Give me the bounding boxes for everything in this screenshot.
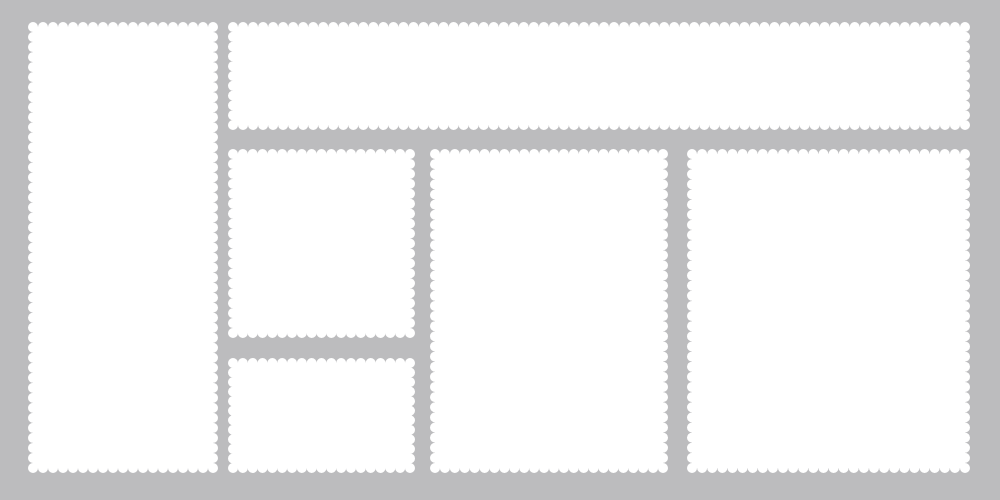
scallop-bump — [188, 463, 198, 473]
scallop-bump — [388, 22, 398, 32]
scallop-bump — [228, 42, 238, 52]
scallop-bump — [509, 149, 519, 159]
scallop-bump — [228, 120, 238, 130]
scallop-bump — [208, 263, 218, 273]
scallop-bump — [168, 22, 178, 32]
scallop-bump — [499, 22, 509, 32]
scallop-bump — [430, 190, 440, 200]
scallop-bump — [430, 169, 440, 179]
scallop-bump — [288, 120, 298, 130]
scallop-bump — [228, 100, 238, 110]
scallop-bump — [430, 281, 440, 291]
scallop-bump — [208, 453, 218, 463]
scallop-bump — [850, 120, 860, 130]
scallop-bump — [430, 352, 440, 362]
scallop-bump — [960, 341, 970, 351]
scallop-bump — [378, 22, 388, 32]
scallop-bump — [687, 250, 697, 260]
scallop-bump — [960, 200, 970, 210]
scallop-bump — [356, 358, 366, 368]
scallop-bump — [198, 463, 208, 473]
scallop-bump — [649, 120, 659, 130]
scallop-bump — [849, 149, 859, 159]
scallop-bump — [960, 179, 970, 189]
scallop-bump — [869, 463, 879, 473]
scallop-bump — [28, 102, 38, 112]
scallop-bump — [830, 120, 840, 130]
scallop-bump — [228, 453, 238, 463]
scallop-bump — [317, 358, 327, 368]
scallop-bump — [960, 22, 970, 32]
scallop-bump — [385, 149, 395, 159]
scallop-bump — [328, 120, 338, 130]
scallop-bump — [208, 433, 218, 443]
scallop-bump — [539, 22, 549, 32]
scallop-bump — [697, 149, 707, 159]
scallop-bump — [228, 169, 238, 179]
scallop-bump — [707, 463, 717, 473]
scallop-bump — [258, 328, 268, 338]
scallop-bump — [28, 122, 38, 132]
scallop-bump — [38, 22, 48, 32]
scallop-bump — [326, 328, 336, 338]
scallop-bump — [820, 120, 830, 130]
scallop-bump — [687, 220, 697, 230]
scallop-bump — [208, 232, 218, 242]
scallop-bump — [860, 120, 870, 130]
scallop-bump — [559, 463, 569, 473]
scallop-bump — [658, 412, 668, 422]
scallop-bump — [88, 22, 98, 32]
scallop-bump — [148, 463, 158, 473]
scallop-bump — [499, 120, 509, 130]
stamp-body — [233, 27, 965, 125]
scallop-bump — [198, 22, 208, 32]
scallop-bump — [798, 149, 808, 159]
scallop-bump — [258, 120, 268, 130]
scallop-bump — [658, 250, 668, 260]
scallop-bump — [899, 149, 909, 159]
scallop-bump — [960, 422, 970, 432]
scallop-bump — [549, 22, 559, 32]
scallop-bump — [920, 120, 930, 130]
scallop-bump — [376, 358, 386, 368]
scallop-bump — [960, 61, 970, 71]
scallop-bump — [430, 341, 440, 351]
scallop-bump — [609, 120, 619, 130]
scallop-bump — [405, 258, 415, 268]
scallop-bump — [727, 463, 737, 473]
scallop-bump — [658, 210, 668, 220]
scallop-bump — [960, 159, 970, 169]
scallop-bump — [618, 149, 628, 159]
scallop-bump — [860, 22, 870, 32]
scallop-bump — [589, 120, 599, 130]
stamp-sheet — [0, 0, 1000, 500]
scallop-bump — [960, 443, 970, 453]
scallop-bump — [800, 22, 810, 32]
scallop-bump — [450, 149, 460, 159]
scallop-bump — [28, 283, 38, 293]
scallop-bump — [658, 382, 668, 392]
scallop-bump — [960, 169, 970, 179]
scallop-bump — [658, 321, 668, 331]
scallop-bump — [28, 253, 38, 263]
scallop-bump — [208, 182, 218, 192]
scallop-bump — [687, 190, 697, 200]
stamp-wide-top — [228, 22, 970, 130]
scallop-bump — [960, 352, 970, 362]
scallop-bump — [238, 22, 248, 32]
scallop-bump — [930, 149, 940, 159]
scallop-bump — [28, 112, 38, 122]
scallop-bump — [378, 120, 388, 130]
scallop-bump — [376, 328, 386, 338]
scallop-bump — [408, 22, 418, 32]
scallop-bump — [658, 443, 668, 453]
scallop-bump — [208, 92, 218, 102]
scallop-bump — [599, 149, 609, 159]
scallop-bump — [707, 149, 717, 159]
scallop-bump — [909, 463, 919, 473]
scallop-bump — [208, 423, 218, 433]
stamp-tall-left — [28, 22, 218, 473]
scallop-bump — [687, 200, 697, 210]
scallop-bump — [348, 120, 358, 130]
scallop-bump — [297, 358, 307, 368]
scallop-bump — [469, 120, 479, 130]
scallop-bump — [717, 149, 727, 159]
scallop-bump — [599, 22, 609, 32]
scallop-bump — [68, 463, 78, 473]
scallop-bump — [405, 425, 415, 435]
scallop-bump — [940, 149, 950, 159]
scallop-bump — [608, 463, 618, 473]
scallop-bump — [28, 142, 38, 152]
scallop-bump — [28, 303, 38, 313]
scallop-bump — [336, 149, 346, 159]
scallop-bump — [405, 358, 415, 368]
scallop-bump — [228, 425, 238, 435]
scallop-bump — [699, 120, 709, 130]
scallop-bump — [385, 358, 395, 368]
scallop-bump — [228, 298, 238, 308]
scallop-bump — [549, 463, 559, 473]
scallop-bump — [307, 358, 317, 368]
scallop-bump — [287, 463, 297, 473]
scallop-bump — [687, 179, 697, 189]
scallop-bump — [28, 393, 38, 403]
scallop-bump — [228, 434, 238, 444]
scallop-bump — [658, 402, 668, 412]
scallop-bump — [405, 288, 415, 298]
scallop-bump — [589, 149, 599, 159]
scallop-bump — [405, 453, 415, 463]
scallop-bump — [28, 323, 38, 333]
scallop-bump — [687, 422, 697, 432]
scallop-bump — [430, 311, 440, 321]
scallop-bump — [890, 22, 900, 32]
scallop-bump — [840, 120, 850, 130]
scallop-bump — [430, 179, 440, 189]
scallop-bump — [829, 463, 839, 473]
scallop-bump — [960, 453, 970, 463]
scallop-bump — [460, 149, 470, 159]
scallop-bump — [870, 22, 880, 32]
stamp-body — [33, 27, 213, 468]
scallop-bump — [138, 463, 148, 473]
scallop-bump — [687, 341, 697, 351]
scallop-bump — [449, 120, 459, 130]
scallop-bump — [405, 149, 415, 159]
scallop-bump — [228, 81, 238, 91]
scallop-bump — [689, 22, 699, 32]
scallop-bump — [297, 463, 307, 473]
scallop-bump — [748, 149, 758, 159]
scallop-bump — [687, 402, 697, 412]
scallop-bump — [395, 463, 405, 473]
scallop-bump — [208, 363, 218, 373]
scallop-bump — [98, 463, 108, 473]
scallop-bump — [28, 383, 38, 393]
scallop-bump — [899, 463, 909, 473]
scallop-bump — [238, 328, 248, 338]
scallop-bump — [208, 403, 218, 413]
scallop-bump — [238, 149, 248, 159]
scallop-bump — [188, 22, 198, 32]
scallop-bump — [395, 149, 405, 159]
scallop-bump — [687, 311, 697, 321]
scallop-bump — [687, 362, 697, 372]
scallop-bump — [909, 149, 919, 159]
scallop-bump — [388, 120, 398, 130]
scallop-bump — [228, 444, 238, 454]
scallop-bump — [405, 298, 415, 308]
scallop-bump — [346, 358, 356, 368]
scallop-bump — [479, 22, 489, 32]
scallop-bump — [769, 120, 779, 130]
stamp-body — [233, 154, 410, 333]
scallop-bump — [228, 406, 238, 416]
scallop-bump — [639, 120, 649, 130]
stamp-body — [692, 154, 965, 468]
scallop-bump — [629, 22, 639, 32]
scallop-bump — [336, 328, 346, 338]
stamps-illustration — [0, 0, 1000, 500]
scallop-bump — [208, 293, 218, 303]
scallop-bump — [687, 453, 697, 463]
scallop-bump — [430, 260, 440, 270]
scallop-bump — [648, 149, 658, 159]
scallop-bump — [248, 328, 258, 338]
scallop-bump — [800, 120, 810, 130]
scallop-bump — [709, 22, 719, 32]
scallop-bump — [138, 22, 148, 32]
scallop-bump — [28, 443, 38, 453]
scallop-bump — [459, 22, 469, 32]
scallop-bump — [430, 372, 440, 382]
scallop-bump — [168, 463, 178, 473]
scallop-bump — [687, 352, 697, 362]
scallop-bump — [669, 22, 679, 32]
scallop-bump — [248, 358, 258, 368]
scallop-bump — [208, 32, 218, 42]
scallop-bump — [960, 433, 970, 443]
scallop-bump — [356, 328, 366, 338]
scallop-bump — [28, 313, 38, 323]
scallop-bump — [658, 271, 668, 281]
scallop-bump — [28, 433, 38, 443]
scallop-bump — [439, 120, 449, 130]
scallop-bump — [879, 463, 889, 473]
scallop-bump — [267, 328, 277, 338]
scallop-bump — [719, 22, 729, 32]
scallop-bump — [68, 22, 78, 32]
scallop-bump — [829, 149, 839, 159]
scallop-bump — [430, 412, 440, 422]
scallop-bump — [808, 149, 818, 159]
scallop-bump — [659, 22, 669, 32]
scallop-bump — [28, 192, 38, 202]
scallop-bump — [687, 443, 697, 453]
stamp-medium-left — [228, 149, 415, 338]
scallop-bump — [228, 308, 238, 318]
scallop-bump — [430, 362, 440, 372]
scallop-bump — [385, 463, 395, 473]
scallop-bump — [58, 463, 68, 473]
scallop-bump — [930, 22, 940, 32]
scallop-bump — [158, 22, 168, 32]
scallop-bump — [88, 463, 98, 473]
scallop-bump — [28, 403, 38, 413]
scallop-bump — [658, 291, 668, 301]
scallop-bump — [28, 82, 38, 92]
scallop-bump — [960, 250, 970, 260]
scallop-bump — [287, 328, 297, 338]
scallop-bump — [228, 387, 238, 397]
scallop-bump — [549, 149, 559, 159]
scallop-bump — [28, 353, 38, 363]
stamp-large-center — [430, 149, 668, 473]
scallop-bump — [298, 22, 308, 32]
scallop-bump — [658, 341, 668, 351]
scallop-bump — [405, 463, 415, 473]
scallop-bump — [638, 463, 648, 473]
scallop-bump — [960, 190, 970, 200]
scallop-bump — [940, 22, 950, 32]
scallop-bump — [405, 268, 415, 278]
scallop-bump — [960, 42, 970, 52]
scallop-bump — [628, 149, 638, 159]
scallop-bump — [658, 453, 668, 463]
scallop-bump — [317, 149, 327, 159]
scallop-bump — [178, 22, 188, 32]
scallop-bump — [278, 22, 288, 32]
scallop-bump — [208, 62, 218, 72]
scallop-bump — [405, 199, 415, 209]
scallop-bump — [430, 240, 440, 250]
scallop-bump — [248, 22, 258, 32]
scallop-bump — [228, 209, 238, 219]
scallop-bump — [960, 271, 970, 281]
scallop-bump — [780, 22, 790, 32]
scallop-bump — [395, 358, 405, 368]
stamp-small-bottom-left — [228, 358, 415, 473]
scallop-bump — [440, 463, 450, 473]
stamp-body — [435, 154, 663, 468]
scallop-bump — [28, 152, 38, 162]
scallop-bump — [287, 358, 297, 368]
scallop-bump — [960, 32, 970, 42]
scallop-bump — [366, 358, 376, 368]
scallop-bump — [529, 149, 539, 159]
scallop-bump — [430, 433, 440, 443]
scallop-bump — [228, 51, 238, 61]
scallop-bump — [599, 463, 609, 473]
scallop-bump — [338, 120, 348, 130]
scallop-bump — [850, 22, 860, 32]
scallop-bump — [869, 149, 879, 159]
scallop-bump — [449, 22, 459, 32]
scallop-bump — [729, 120, 739, 130]
scallop-bump — [430, 200, 440, 210]
scallop-bump — [930, 463, 940, 473]
scallop-bump — [208, 373, 218, 383]
scallop-bump — [890, 120, 900, 130]
scallop-bump — [78, 463, 88, 473]
scallop-bump — [48, 463, 58, 473]
scallop-bump — [628, 463, 638, 473]
scallop-bump — [405, 308, 415, 318]
scallop-bump — [108, 22, 118, 32]
scallop-bump — [960, 91, 970, 101]
scallop-bump — [228, 258, 238, 268]
scallop-bump — [28, 202, 38, 212]
scallop-bump — [308, 22, 318, 32]
scallop-bump — [910, 120, 920, 130]
scallop-bump — [429, 120, 439, 130]
scallop-bump — [859, 149, 869, 159]
scallop-bump — [470, 149, 480, 159]
scallop-bump — [687, 382, 697, 392]
scallop-bump — [960, 260, 970, 270]
scallop-bump — [228, 248, 238, 258]
scallop-bump — [248, 120, 258, 130]
scallop-bump — [208, 172, 218, 182]
scallop-bump — [208, 323, 218, 333]
scallop-bump — [430, 382, 440, 392]
scallop-bump — [519, 149, 529, 159]
scallop-bump — [405, 219, 415, 229]
scallop-bump — [28, 263, 38, 273]
scallop-bump — [609, 22, 619, 32]
scallop-bump — [759, 22, 769, 32]
scallop-bump — [419, 22, 429, 32]
scallop-bump — [228, 396, 238, 406]
scallop-bump — [960, 51, 970, 61]
scallop-bump — [440, 149, 450, 159]
scallop-bump — [960, 240, 970, 250]
scallop-bump — [549, 120, 559, 130]
scallop-bump — [940, 463, 950, 473]
scallop-bump — [687, 260, 697, 270]
scallop-bump — [148, 22, 158, 32]
scallop-bump — [118, 22, 128, 32]
scallop-bump — [358, 22, 368, 32]
scallop-bump — [28, 42, 38, 52]
scallop-bump — [689, 120, 699, 130]
scallop-bump — [267, 149, 277, 159]
